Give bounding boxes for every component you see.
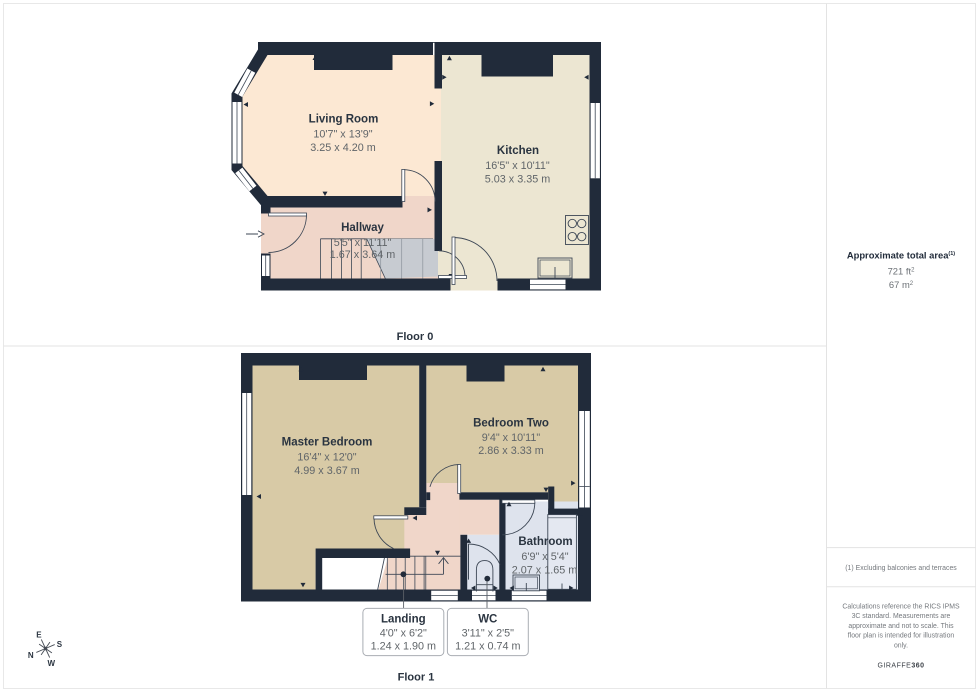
- svg-text:16'5" x 10'11": 16'5" x 10'11": [485, 160, 550, 172]
- svg-text:(1) Excluding balconies and te: (1) Excluding balconies and terraces: [845, 565, 957, 572]
- svg-text:3.25 x 4.20 m: 3.25 x 4.20 m: [310, 142, 375, 154]
- svg-text:721 ft2: 721 ft2: [888, 266, 915, 277]
- svg-text:2.86 x 3.33 m: 2.86 x 3.33 m: [478, 445, 543, 457]
- svg-text:Living Room: Living Room: [309, 114, 379, 126]
- svg-text:1.24 x 1.90 m: 1.24 x 1.90 m: [371, 641, 436, 653]
- svg-text:5'5" x 11'11": 5'5" x 11'11": [334, 237, 392, 249]
- svg-text:Floor 1: Floor 1: [398, 672, 435, 684]
- svg-text:4'0" x 6'2": 4'0" x 6'2": [380, 628, 427, 640]
- svg-text:Calculations reference the RIC: Calculations reference the RICS IPMS: [842, 603, 960, 610]
- svg-text:E: E: [36, 631, 42, 640]
- svg-text:9'4" x 10'11": 9'4" x 10'11": [482, 432, 541, 444]
- svg-text:Approximate total area(1): Approximate total area(1): [847, 250, 955, 261]
- svg-text:3C standard. Measurements are: 3C standard. Measurements are: [852, 613, 951, 620]
- svg-text:6'9" x 5'4": 6'9" x 5'4": [521, 551, 568, 563]
- svg-text:1.21 x 0.74 m: 1.21 x 0.74 m: [455, 641, 520, 653]
- svg-text:GIRAFFE360: GIRAFFE360: [877, 663, 924, 670]
- svg-text:S: S: [57, 640, 63, 649]
- svg-text:5.03 x 3.35 m: 5.03 x 3.35 m: [485, 174, 550, 186]
- svg-text:2.07 x 1.65 m: 2.07 x 1.65 m: [512, 564, 577, 576]
- svg-text:Hallway: Hallway: [341, 222, 384, 234]
- svg-text:1.67 x 3.64 m: 1.67 x 3.64 m: [330, 249, 395, 261]
- svg-text:WC: WC: [478, 614, 497, 626]
- svg-text:floor plan is intended for ill: floor plan is intended for illustration: [848, 633, 955, 640]
- svg-text:4.99 x 3.67 m: 4.99 x 3.67 m: [294, 465, 359, 477]
- svg-text:Bedroom Two: Bedroom Two: [473, 418, 549, 430]
- svg-text:approximate and not to scale.: approximate and not to scale. This: [848, 623, 954, 630]
- svg-text:Floor 0: Floor 0: [397, 331, 434, 343]
- svg-text:Bathroom: Bathroom: [518, 536, 572, 548]
- svg-text:W: W: [48, 659, 56, 668]
- svg-text:16'4" x 12'0": 16'4" x 12'0": [297, 451, 356, 463]
- svg-text:10'7" x 13'9": 10'7" x 13'9": [313, 129, 372, 141]
- svg-text:only.: only.: [894, 643, 908, 650]
- svg-text:3'11" x 2'5": 3'11" x 2'5": [462, 628, 515, 640]
- svg-text:Landing: Landing: [381, 614, 426, 626]
- svg-text:Kitchen: Kitchen: [497, 145, 539, 157]
- svg-text:Master Bedroom: Master Bedroom: [282, 437, 373, 449]
- svg-text:N: N: [28, 651, 34, 660]
